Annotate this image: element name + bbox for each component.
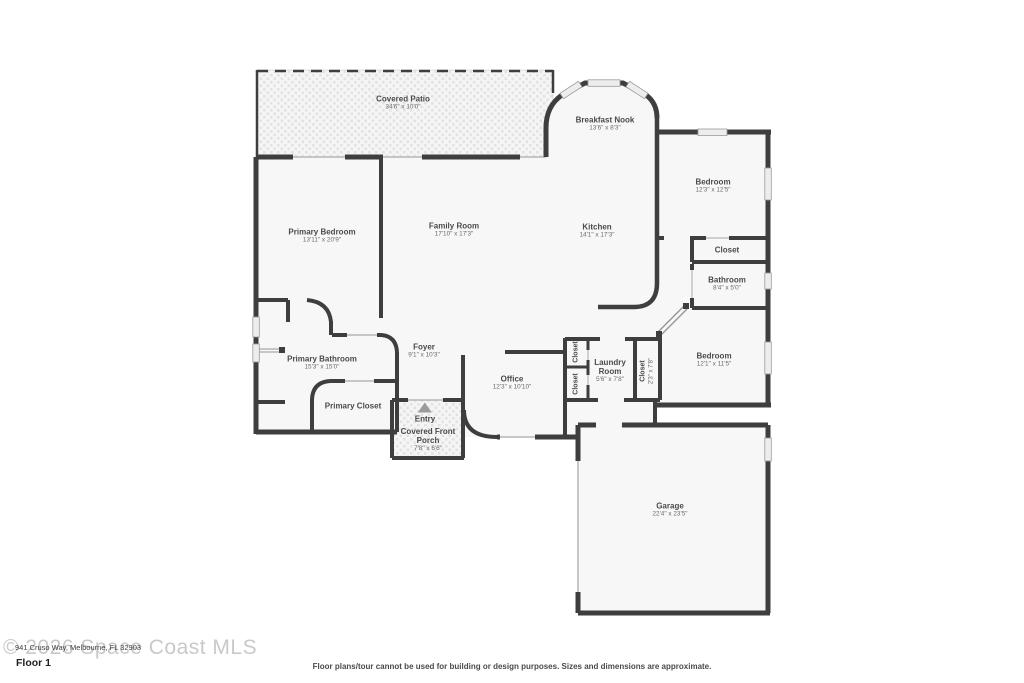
disclaimer-text: Floor plans/tour cannot be used for buil… <box>0 662 1024 671</box>
floor-plan-drawing <box>0 0 1024 683</box>
floor-plan-page: Covered Patio 34'6" x 10'0" Breakfast No… <box>0 0 1024 683</box>
room-fills <box>257 70 768 613</box>
property-address: 941 Cruso Way, Melbourne, FL 32903 <box>15 643 141 652</box>
